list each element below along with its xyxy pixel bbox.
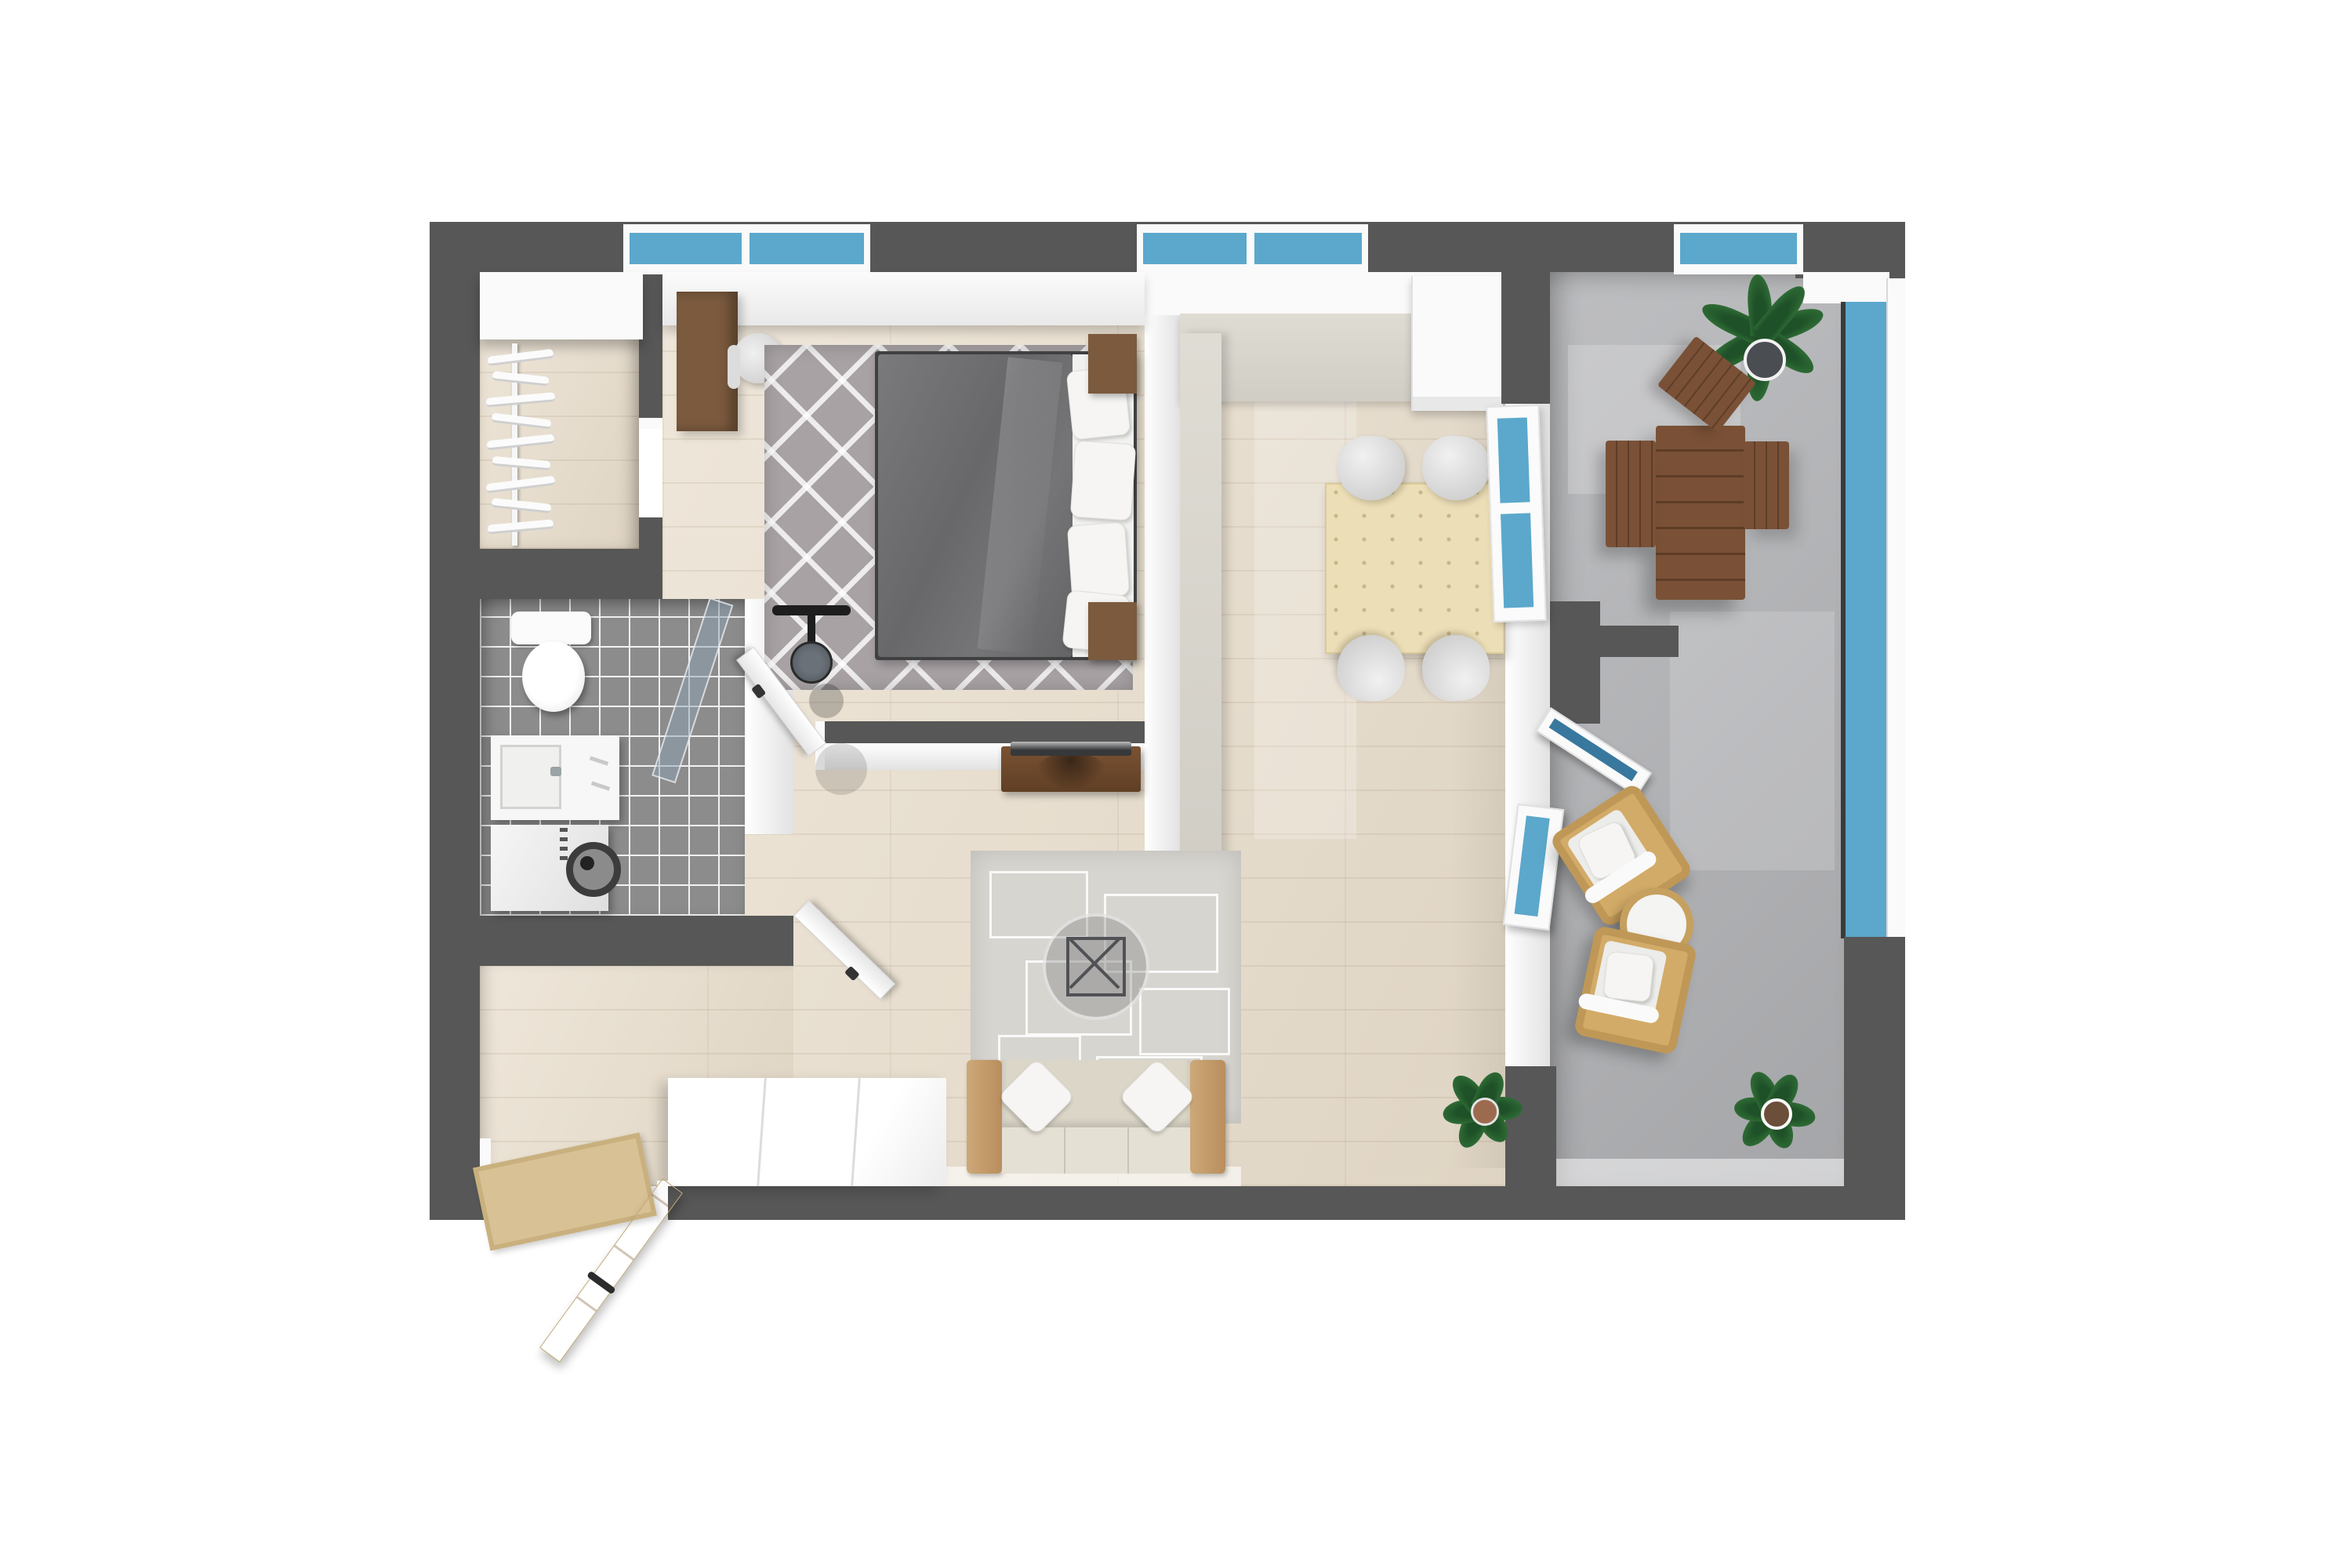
sofa-arm-left [967, 1060, 1002, 1174]
bottom-wall [662, 1186, 1905, 1220]
balcony-pier-arm [1600, 626, 1679, 657]
vanity-handle-2 [591, 781, 610, 790]
kitchen-window-mullion [1247, 233, 1254, 264]
sofa-arm-right [1190, 1060, 1225, 1174]
dining-chair-1 [1338, 436, 1405, 500]
balcony-pier [1550, 601, 1600, 724]
railing-outer-frame [1886, 278, 1905, 938]
dining-table [1325, 483, 1504, 654]
vanity-faucet [550, 767, 561, 776]
bed-pillow-3 [1067, 522, 1130, 600]
plant-pot [1761, 1098, 1792, 1130]
kitchen-tall-cabinet [1411, 276, 1503, 411]
wardrobe [480, 272, 643, 339]
sofa-seat-2 [1065, 1127, 1129, 1174]
sofa [967, 1060, 1225, 1174]
shower-head [790, 641, 833, 684]
rug-pattern-line [1139, 988, 1230, 1055]
balcony-window-glass [1680, 233, 1797, 264]
balcony-partition-top-stub [1501, 272, 1550, 404]
kitchen-partition-wall [1145, 272, 1180, 898]
outdoor-dining-table [1656, 426, 1745, 600]
sideboard [668, 1078, 946, 1186]
washer-controls [560, 828, 568, 862]
nightstand-top [1088, 334, 1137, 394]
balcony-door [1486, 405, 1547, 622]
right-bottom-wall [1844, 937, 1905, 1220]
sofa-seat-1 [1002, 1127, 1065, 1174]
left-wall [430, 222, 480, 1180]
front-door-handle [586, 1271, 616, 1295]
bathroom-entry-wall [430, 916, 793, 966]
office-chair-back [728, 345, 740, 389]
plant-pot [1471, 1098, 1499, 1126]
glass-railing [1846, 302, 1886, 938]
bedroom-south-wall [823, 721, 1145, 743]
nightstand-bottom [1088, 602, 1137, 660]
vanity-basin [500, 745, 561, 809]
washing-machine [491, 825, 608, 911]
sideboard-seam-2 [851, 1078, 861, 1186]
balcony-door-glass-top [1497, 417, 1530, 503]
bedroom-window-mullion [742, 233, 750, 264]
sofa-seat-3 [1129, 1127, 1190, 1174]
sink-vanity [491, 735, 619, 820]
balcony-wall-light-strip [1556, 1159, 1870, 1186]
drain-shadow [815, 743, 867, 795]
coffee-table [1043, 913, 1149, 1020]
toilet-tank [511, 612, 591, 644]
outdoor-chair-left [1606, 441, 1656, 547]
balcony-plant [1733, 1070, 1814, 1152]
kitchen-counter-side-run [1180, 333, 1221, 898]
living-plant [1441, 1068, 1523, 1149]
floor-plan [0, 0, 2352, 1568]
bed-pillow-2 [1070, 440, 1137, 521]
closet-right-wall-lower [639, 517, 662, 549]
palm-pot [1744, 339, 1786, 381]
tilt-window-lower-glass [1515, 815, 1550, 916]
wicker-pillow [1602, 951, 1654, 1003]
sideboard-seam-1 [757, 1078, 767, 1186]
closet-wall-endcap [639, 418, 662, 429]
toilet-bowl [522, 641, 585, 712]
washer-door-ring [566, 842, 621, 897]
vanity-handle-1 [590, 756, 608, 765]
outdoor-chair-right [1744, 441, 1789, 529]
shower-shadow [809, 684, 844, 718]
balcony-door-glass-bottom [1501, 513, 1534, 608]
tv-shadow [1036, 753, 1106, 790]
balcony-sun-patch-2 [1670, 612, 1835, 870]
tv [1011, 742, 1131, 756]
washer-door-center [580, 856, 594, 870]
